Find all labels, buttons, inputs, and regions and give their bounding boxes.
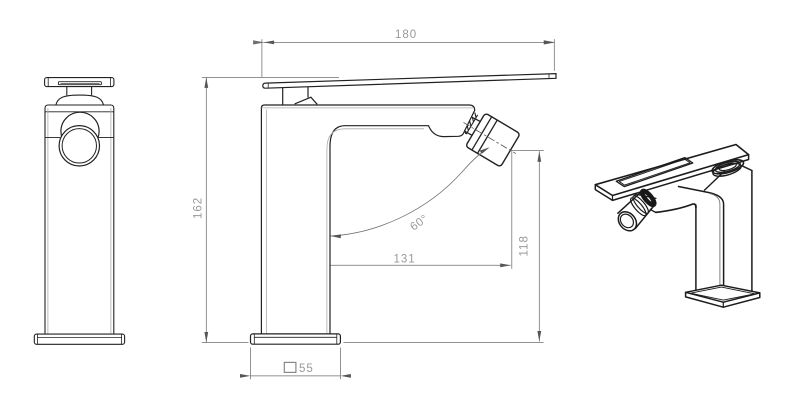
svg-text:60°: 60° [408, 213, 430, 234]
svg-text:180: 180 [395, 29, 417, 41]
svg-text:162: 162 [193, 197, 205, 219]
svg-text:118: 118 [519, 235, 531, 256]
svg-text:55: 55 [299, 363, 314, 375]
svg-text:131: 131 [394, 254, 416, 266]
